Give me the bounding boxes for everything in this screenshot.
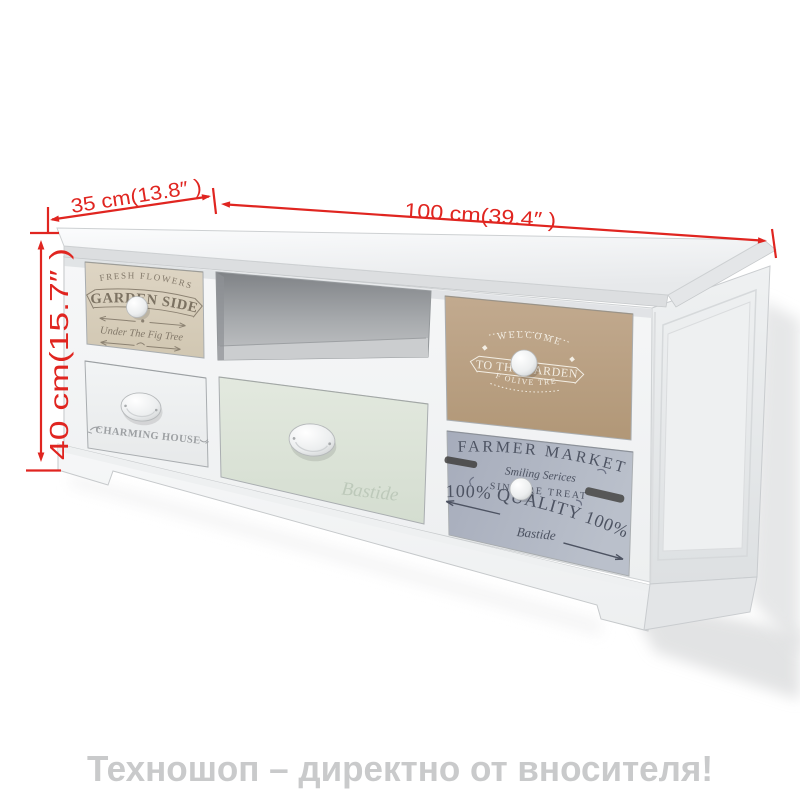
product-image: FRESH FLOWERS GARDEN SIDE Under The Fig … bbox=[0, 0, 800, 800]
dimension-junction-tick bbox=[213, 188, 216, 214]
side-panel bbox=[650, 266, 770, 584]
dimension-right-tick bbox=[772, 229, 776, 258]
dimension-width-label: 100 cm(39.4″ ) bbox=[404, 199, 557, 232]
store-caption: Техношоп – директно от вносителя! bbox=[87, 748, 713, 789]
dimension-height-label: 40 cm(15.7″ ) bbox=[44, 248, 74, 460]
dimension-depth-label: 35 cm(13.8″ ) bbox=[69, 176, 203, 218]
tv-cabinet-dimension-diagram: FRESH FLOWERS GARDEN SIDE Under The Fig … bbox=[0, 0, 800, 800]
